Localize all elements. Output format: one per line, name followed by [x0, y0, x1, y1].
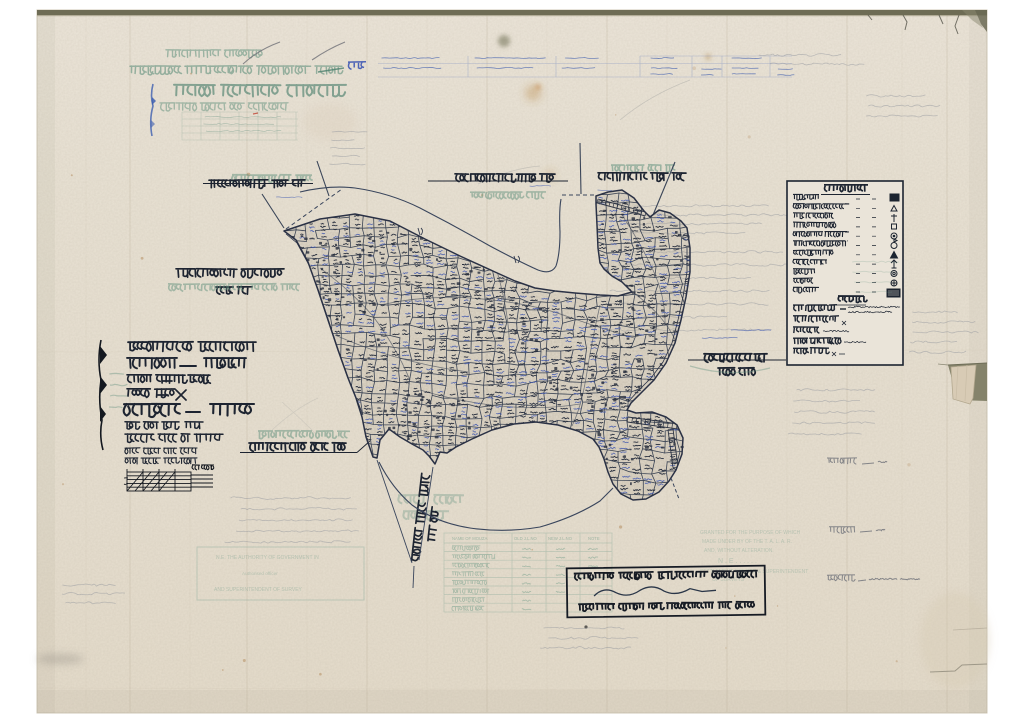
svg-text:Authorised officer: Authorised officer	[242, 571, 278, 576]
svg-text:MADE UNDER BY OF THE T. A. L.: MADE UNDER BY OF THE T. A. L. A. R.	[702, 539, 792, 545]
svg-text:NEW J.L.NO: NEW J.L.NO	[548, 536, 573, 541]
svg-text:AND SUPERINTENDENT OF SURVEY: AND SUPERINTENDENT OF SURVEY	[214, 587, 303, 593]
svg-text:GRANTED FOR THE PURPOSE OF WHI: GRANTED FOR THE PURPOSE OF WHICH	[700, 530, 801, 536]
svg-text:N . E . . . . . .: N . E . . . . . .	[718, 558, 757, 565]
svg-text:N.E. THE AUTHORITY OF GOVERNME: N.E. THE AUTHORITY OF GOVERNMENT IN	[216, 555, 319, 561]
svg-text:OLD J.L.NO: OLD J.L.NO	[514, 536, 538, 541]
svg-text:AND, WITHOUT ALTERATION.: AND, WITHOUT ALTERATION.	[704, 548, 774, 554]
svg-text:NAME OF MOUZA: NAME OF MOUZA	[452, 536, 488, 541]
svg-text:NOTE: NOTE	[588, 536, 600, 541]
